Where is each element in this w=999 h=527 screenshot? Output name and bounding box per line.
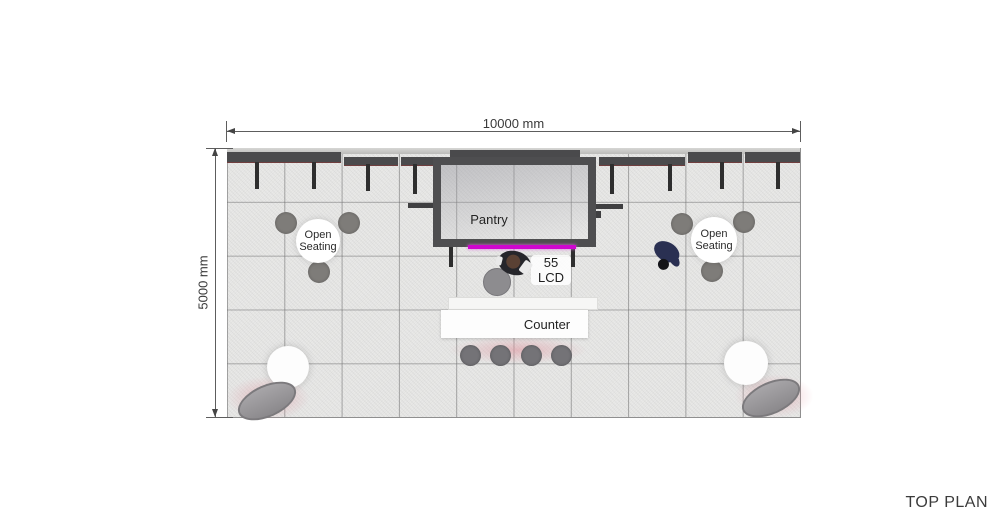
lcd-label: 55 LCD — [531, 255, 571, 285]
lcd-label-line1: 55 — [531, 255, 571, 270]
hanging-panel — [312, 162, 316, 189]
open-seating-label-right: Open Seating — [691, 228, 737, 252]
lcd-label-line2: LCD — [531, 270, 571, 285]
wall-segment — [227, 152, 341, 163]
dimension-extension-tick — [206, 417, 233, 418]
lcd-screen — [468, 245, 576, 249]
dimension-extension-tick — [206, 148, 233, 149]
dimension-line-width — [227, 131, 800, 132]
stool — [483, 268, 511, 296]
counter-stool — [521, 345, 542, 366]
seating-chair — [338, 212, 360, 234]
arrowhead-down-icon — [212, 409, 218, 417]
top-plan-canvas: Pantry 55 LCD Counter Open Seating Open … — [0, 0, 999, 527]
seating-chair — [275, 212, 297, 234]
seating-chair — [671, 213, 693, 235]
pantry-wing-wall — [408, 203, 435, 208]
wall-segment — [688, 152, 742, 163]
wall-segment — [745, 152, 800, 163]
hanging-panel — [610, 164, 614, 194]
pantry-wing-wall — [594, 204, 623, 209]
arrowhead-left-icon — [227, 128, 235, 134]
open-seating-table-right: Open Seating — [691, 217, 737, 263]
counter-stool — [460, 345, 481, 366]
arrowhead-up-icon — [212, 148, 218, 156]
dimension-extension-tick — [800, 121, 801, 142]
hanging-panel — [668, 164, 672, 191]
wall-segment — [344, 157, 398, 166]
hanging-panel — [776, 162, 780, 189]
hanging-panel — [255, 162, 259, 189]
dimension-label-height: 5000 mm — [196, 228, 211, 338]
hanging-panel — [413, 164, 417, 194]
pantry-room — [433, 157, 596, 247]
page-title: TOP PLAN — [858, 494, 988, 512]
counter-upper-shelf — [448, 297, 598, 310]
pantry-front-post — [571, 247, 575, 267]
hanging-panel — [720, 162, 724, 189]
seating-chair — [701, 260, 723, 282]
pantry-label: Pantry — [449, 212, 529, 227]
round-pouf — [724, 341, 768, 385]
seating-chair — [308, 261, 330, 283]
dimension-line-height — [215, 148, 216, 417]
wall-segment — [401, 157, 433, 166]
dimension-label-width: 10000 mm — [440, 116, 587, 131]
open-seating-table-left: Open Seating — [296, 219, 340, 263]
counter-label: Counter — [508, 317, 586, 332]
pantry-door-nub — [596, 211, 601, 218]
counter-stool — [551, 345, 572, 366]
hanging-panel — [366, 164, 370, 191]
arrowhead-right-icon — [792, 128, 800, 134]
open-seating-label-left: Open Seating — [296, 229, 340, 253]
counter-stool — [490, 345, 511, 366]
pantry-front-post — [449, 247, 453, 267]
